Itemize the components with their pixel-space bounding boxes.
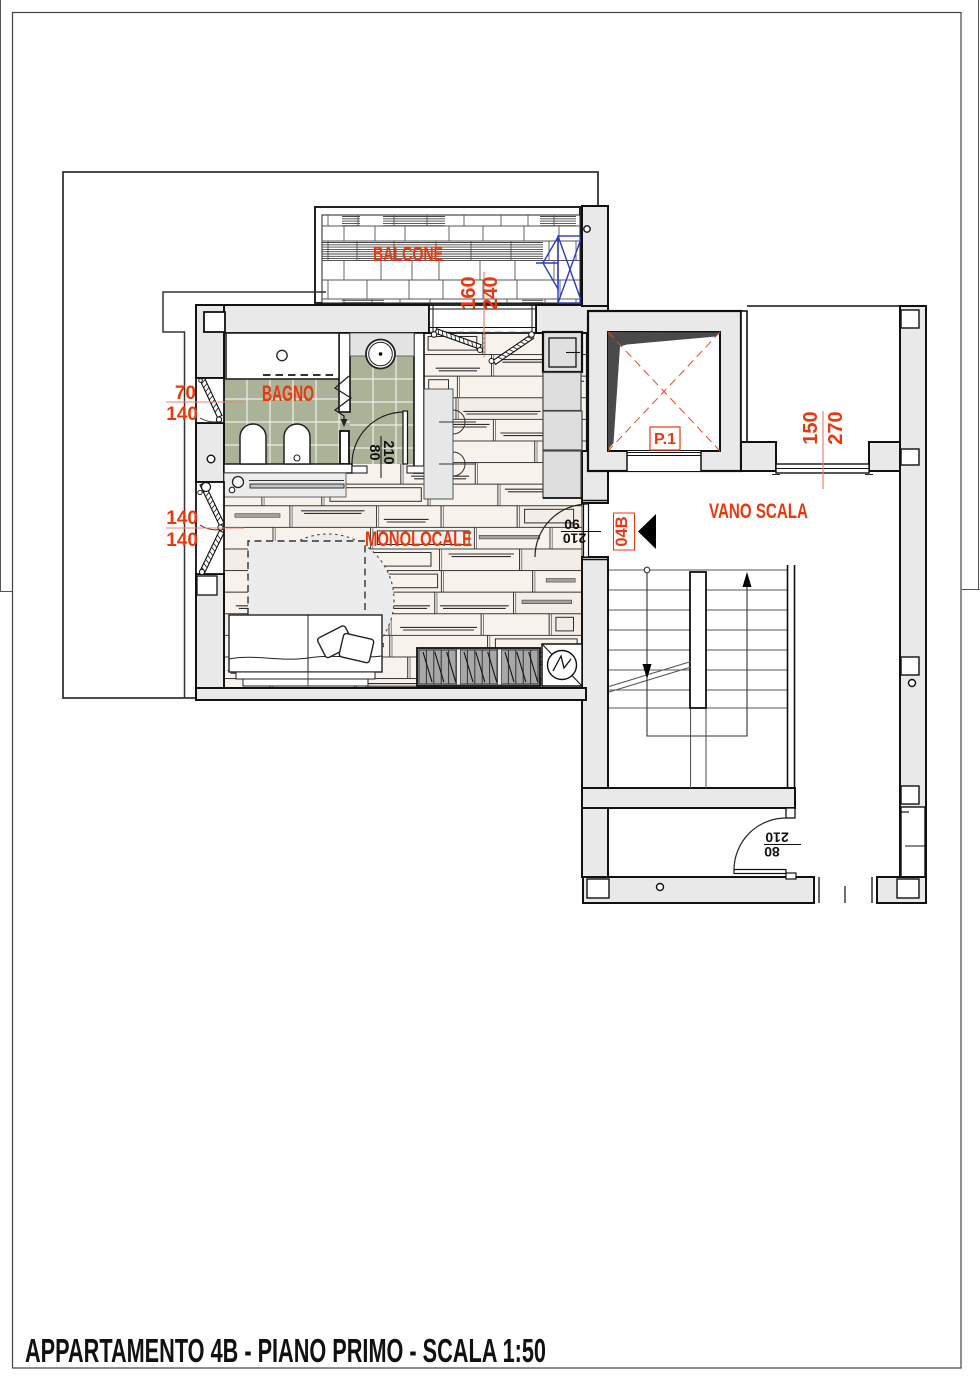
svg-text:160: 160 xyxy=(458,276,480,309)
svg-text:APPARTAMENTO 4B - PIANO PRIMO: APPARTAMENTO 4B - PIANO PRIMO - SCALA 1:… xyxy=(25,1332,546,1369)
svg-text:210: 210 xyxy=(563,531,587,547)
svg-text:270: 270 xyxy=(825,411,847,444)
svg-text:04B: 04B xyxy=(613,516,631,546)
svg-text:140: 140 xyxy=(166,404,198,425)
svg-text:VANO SCALA: VANO SCALA xyxy=(709,499,808,523)
svg-text:BAGNO: BAGNO xyxy=(262,381,314,406)
svg-text:210: 210 xyxy=(765,830,789,846)
svg-text:P.1: P.1 xyxy=(654,431,676,448)
svg-text:80: 80 xyxy=(764,844,780,860)
svg-text:240: 240 xyxy=(480,276,502,309)
svg-text:90: 90 xyxy=(564,517,580,533)
svg-text:MONOLOCALE: MONOLOCALE xyxy=(365,528,472,551)
svg-text:BALCONE: BALCONE xyxy=(373,243,443,266)
svg-text:80: 80 xyxy=(366,444,382,460)
svg-text:140: 140 xyxy=(166,508,198,529)
svg-text:140: 140 xyxy=(166,530,198,551)
svg-text:70: 70 xyxy=(175,383,196,404)
svg-text:150: 150 xyxy=(800,411,822,444)
